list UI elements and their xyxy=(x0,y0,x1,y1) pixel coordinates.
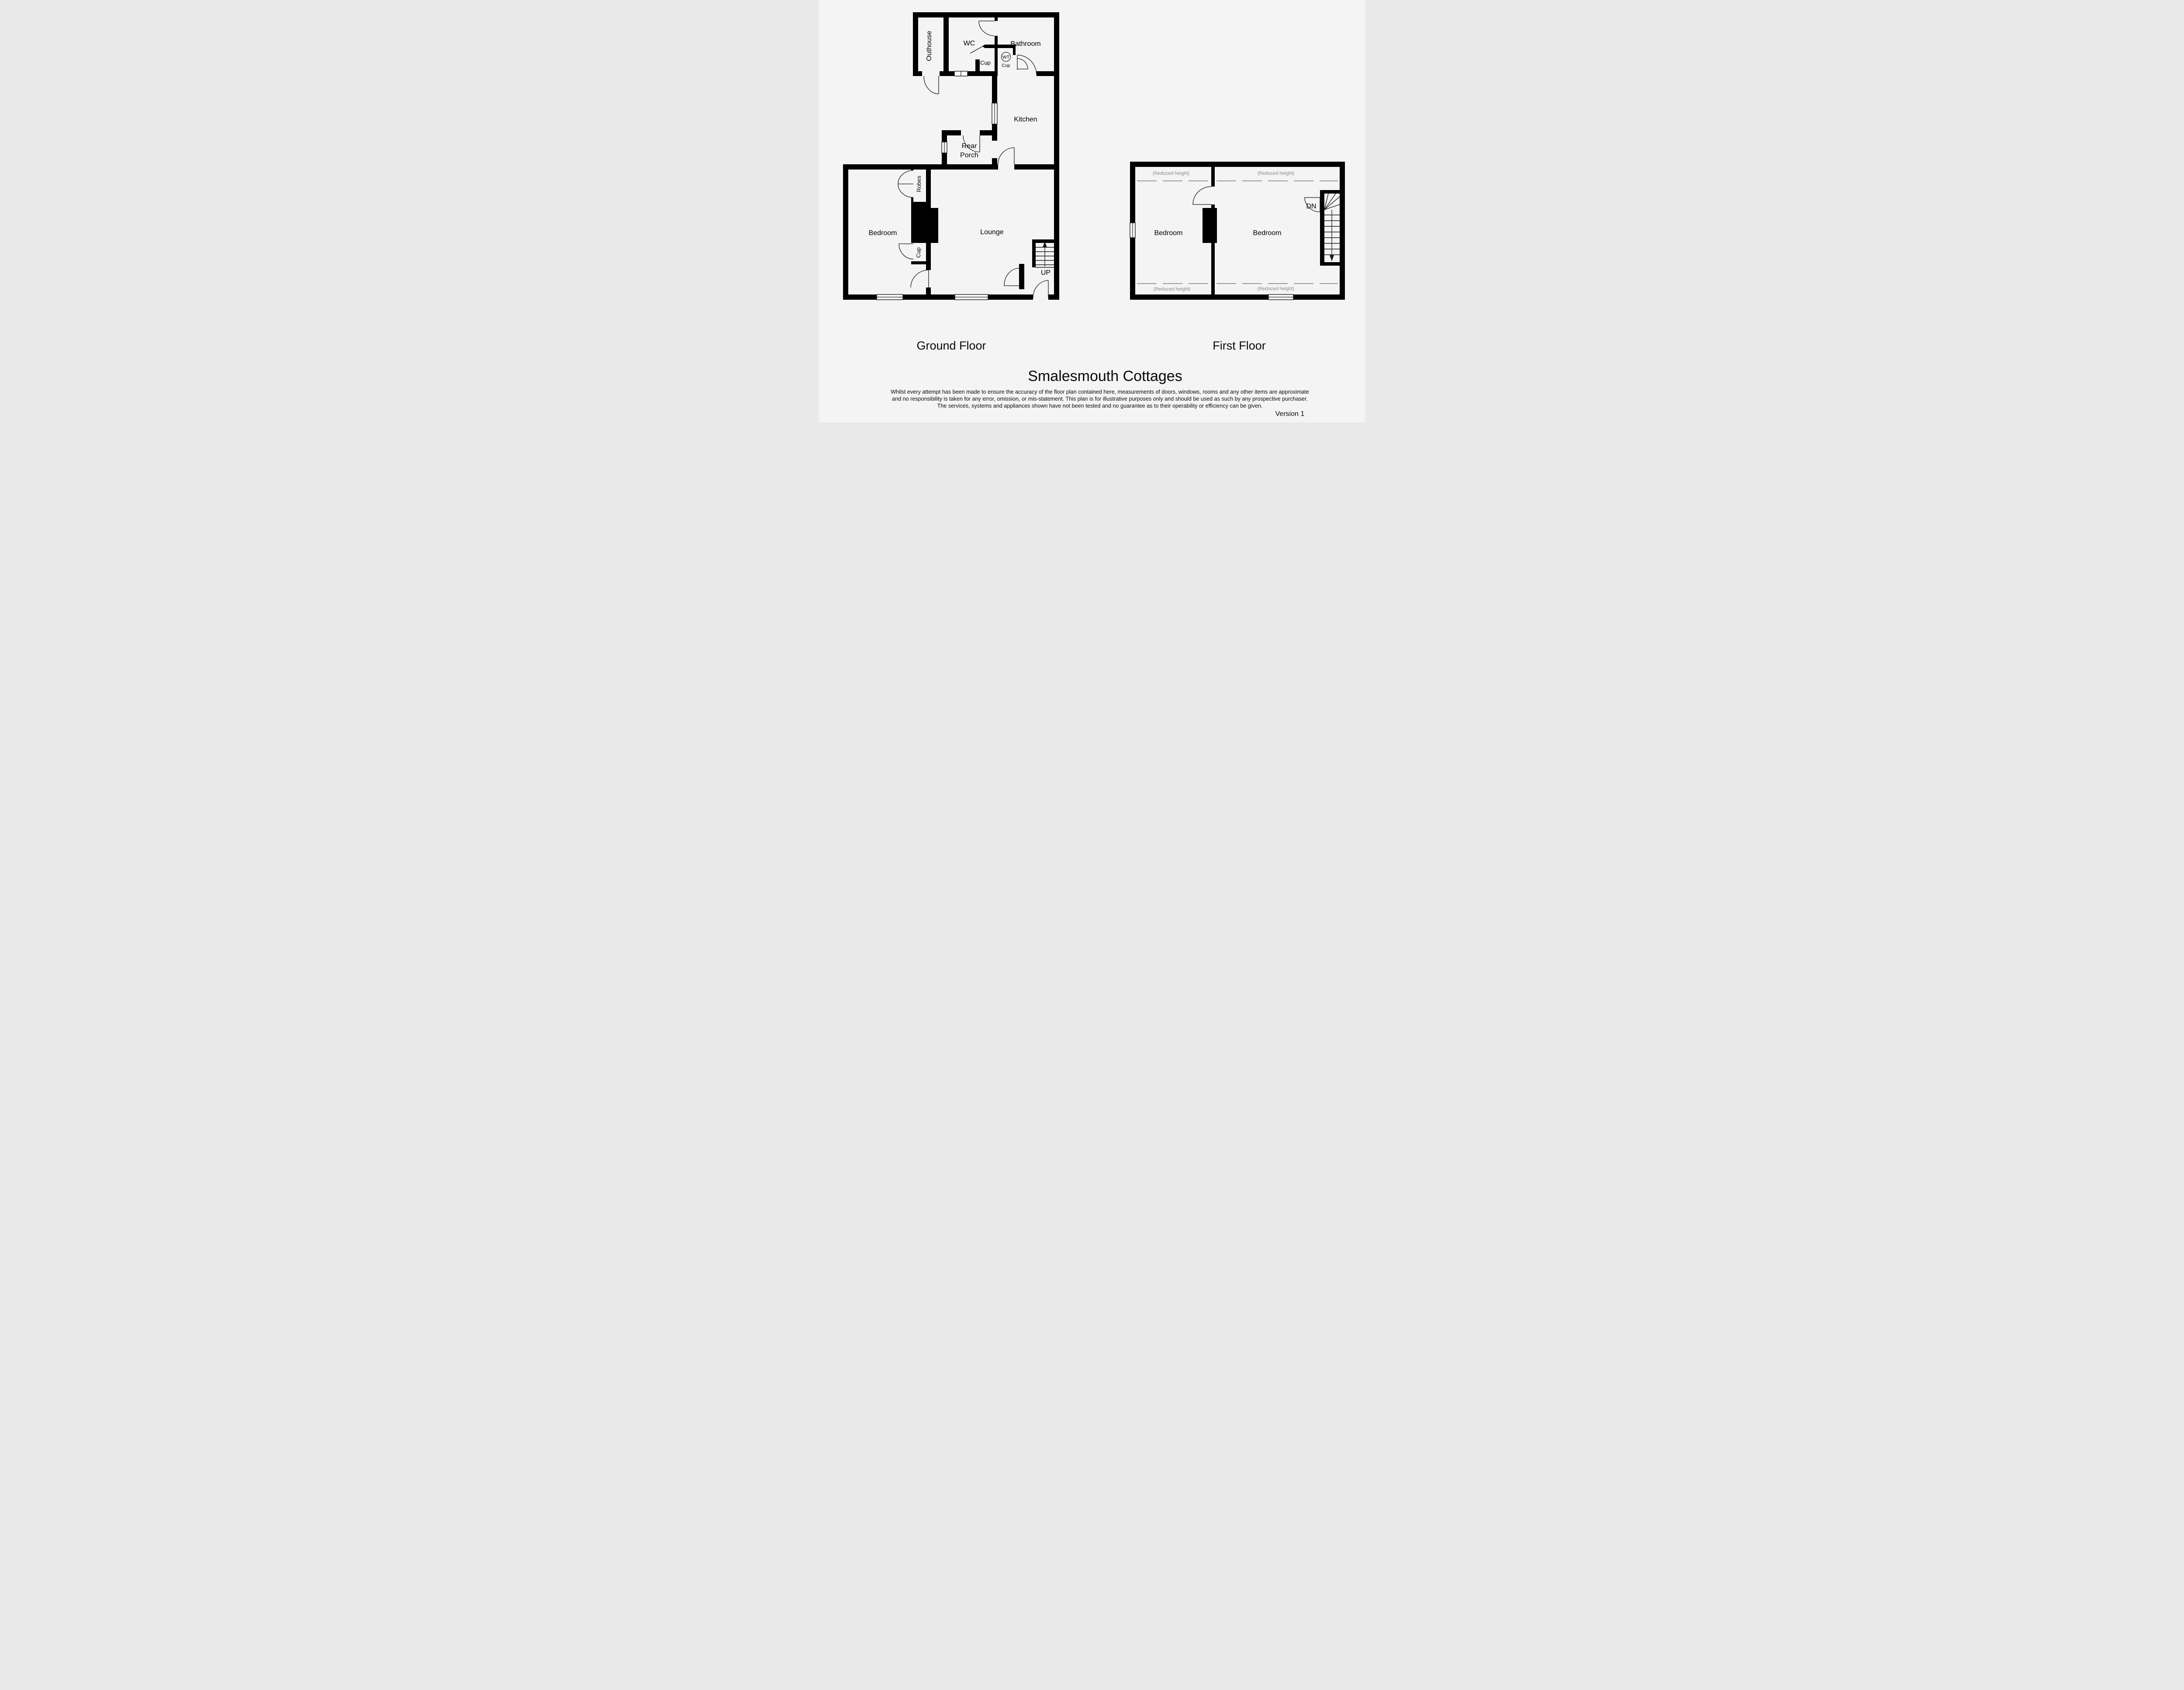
label-bedroom-cup: Cup xyxy=(915,247,922,258)
ground-chimney-breast xyxy=(911,208,938,243)
label-stairs-dn: DN xyxy=(1306,203,1316,210)
label-first-bedroom-right: Bedroom xyxy=(1253,229,1282,237)
label-bathroom: Bathroom xyxy=(1010,40,1040,48)
label-rear-porch-2: Porch xyxy=(960,152,978,159)
disclaimer-line-2: and no responsibility is taken for any e… xyxy=(892,396,1308,402)
label-wc: WC xyxy=(964,40,975,47)
ground-floor-windows xyxy=(877,71,997,300)
label-reduced-height-top-right: (Reduced height) xyxy=(1258,171,1294,176)
door-wc-cupboard xyxy=(970,47,982,53)
window-lounge xyxy=(955,294,988,300)
window-bedroom xyxy=(877,294,903,300)
stairs-down-arrow xyxy=(1330,255,1334,261)
door-robes-double xyxy=(898,170,913,197)
ground-floor-staircase xyxy=(1036,241,1054,267)
door-bedroom-cupboard xyxy=(899,244,913,259)
label-reduced-height-bottom-right: (Reduced height) xyxy=(1258,286,1294,291)
label-stairs-up: UP xyxy=(1041,269,1051,277)
window-wc-block xyxy=(954,71,968,76)
door-front-entrance xyxy=(1033,281,1048,298)
first-floor-plan: DN (Reduced height) (Reduced height) (Re… xyxy=(1130,162,1345,300)
ground-floor-labels: Outhouse WC Cup Bathroom WT Cup Kitchen … xyxy=(869,31,1051,277)
floorplan-page: Outhouse WC Cup Bathroom WT Cup Kitchen … xyxy=(819,0,1365,422)
label-robes: Robes xyxy=(916,176,922,192)
door-wc-bathroom xyxy=(979,21,995,36)
first-floor-labels: (Reduced height) (Reduced height) (Reduc… xyxy=(1153,171,1294,292)
door-kitchen-lounge xyxy=(998,148,1014,164)
disclaimer-line-3: The services, systems and appliances sho… xyxy=(937,403,1263,409)
window-first-floor-bottom xyxy=(1268,294,1293,300)
ground-floor-title: Ground Floor xyxy=(916,339,986,352)
label-lounge: Lounge xyxy=(980,229,1003,236)
version-label: Version 1 xyxy=(1275,410,1305,418)
label-wt-cup: Cup xyxy=(1002,63,1010,68)
door-between-bedrooms xyxy=(1193,187,1211,204)
first-floor-chimney-breast xyxy=(1203,208,1217,243)
window-first-floor-left xyxy=(1130,223,1135,238)
ground-floor-walls xyxy=(843,12,1059,300)
plan-title: Smalesmouth Cottages xyxy=(1028,368,1182,384)
label-ground-bedroom: Bedroom xyxy=(869,229,897,237)
label-outhouse: Outhouse xyxy=(926,31,933,61)
label-first-bedroom-left: Bedroom xyxy=(1154,229,1183,237)
ground-floor-plan: Outhouse WC Cup Bathroom WT Cup Kitchen … xyxy=(843,12,1059,300)
titles: Ground Floor First Floor Smalesmouth Cot… xyxy=(891,339,1309,418)
window-kitchen xyxy=(992,103,997,124)
label-wc-cup: Cup xyxy=(980,59,991,66)
door-bathroom xyxy=(1017,55,1037,75)
door-outhouse xyxy=(924,76,939,94)
door-understairs xyxy=(1004,268,1019,286)
first-floor-title: First Floor xyxy=(1213,339,1266,352)
label-kitchen: Kitchen xyxy=(1014,116,1037,123)
disclaimer-line-1: Whilst every attempt has been made to en… xyxy=(891,389,1309,395)
door-bedroom xyxy=(911,270,929,287)
label-wt: WT xyxy=(1002,55,1010,60)
wc-cup-wall-tip xyxy=(982,45,998,48)
floorplan-drawing: Outhouse WC Cup Bathroom WT Cup Kitchen … xyxy=(819,0,1365,422)
label-reduced-height-top-left: (Reduced height) xyxy=(1153,171,1189,176)
label-reduced-height-bottom-left: (Reduced height) xyxy=(1154,287,1190,292)
label-rear-porch-1: Rear xyxy=(962,142,977,150)
window-rear-porch xyxy=(942,142,947,153)
